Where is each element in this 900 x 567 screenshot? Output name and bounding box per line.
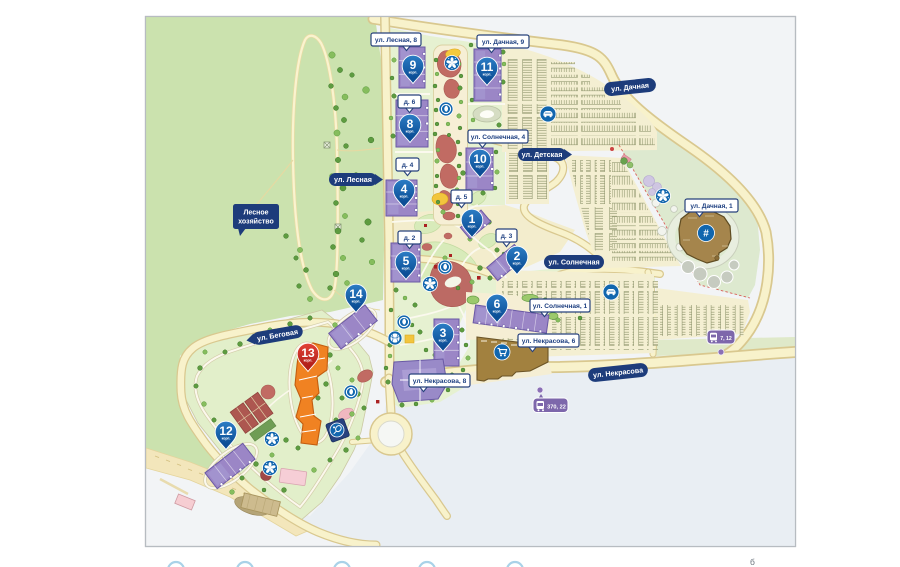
svg-text:ул. Солнечная: ул. Солнечная	[548, 258, 599, 267]
svg-text:корп.: корп.	[400, 195, 409, 199]
svg-text:корп.: корп.	[439, 339, 448, 343]
svg-text:корп.: корп.	[409, 71, 418, 75]
svg-text:корп.: корп.	[352, 300, 361, 304]
svg-text:корп.: корп.	[222, 437, 231, 441]
svg-text:ул. Солнечная, 4: ул. Солнечная, 4	[471, 134, 526, 141]
svg-text:ул. Дачная, 9: ул. Дачная, 9	[482, 39, 525, 46]
svg-text:ул. Некрасова, 6: ул. Некрасова, 6	[522, 338, 576, 345]
svg-text:корп.: корп.	[406, 130, 415, 134]
svg-text:корп.: корп.	[304, 359, 313, 363]
svg-text:#: #	[703, 228, 709, 239]
svg-text:хозяйство: хозяйство	[238, 218, 274, 226]
svg-text:ул. Дачная, 1: ул. Дачная, 1	[690, 203, 733, 210]
svg-text:корп.: корп.	[402, 267, 411, 271]
svg-text:д. 4: д. 4	[402, 162, 414, 169]
svg-text:корп.: корп.	[493, 310, 502, 314]
svg-text:Лесное: Лесное	[243, 210, 268, 217]
svg-text:д. 5: д. 5	[456, 194, 468, 201]
svg-text:корп.: корп.	[476, 165, 485, 169]
svg-text:ул. Некрасова, 8: ул. Некрасова, 8	[413, 378, 467, 385]
svg-text:ул. Солнечная, 1: ул. Солнечная, 1	[533, 303, 588, 310]
svg-text:7, 12: 7, 12	[720, 336, 732, 342]
svg-text:370, 22: 370, 22	[547, 404, 566, 410]
svg-text:д. 3: д. 3	[501, 233, 513, 240]
svg-text:б: б	[750, 557, 755, 567]
svg-text:ул. Лесная, 8: ул. Лесная, 8	[375, 37, 417, 44]
svg-text:корп.: корп.	[468, 225, 477, 229]
svg-text:д. 2: д. 2	[404, 235, 416, 242]
svg-text:ул. Детская: ул. Детская	[522, 150, 563, 159]
svg-text:корп.: корп.	[513, 262, 522, 266]
svg-text:д. 6: д. 6	[404, 99, 416, 106]
svg-text:корп.: корп.	[483, 73, 492, 77]
svg-text:ул. Лесная: ул. Лесная	[334, 175, 372, 184]
